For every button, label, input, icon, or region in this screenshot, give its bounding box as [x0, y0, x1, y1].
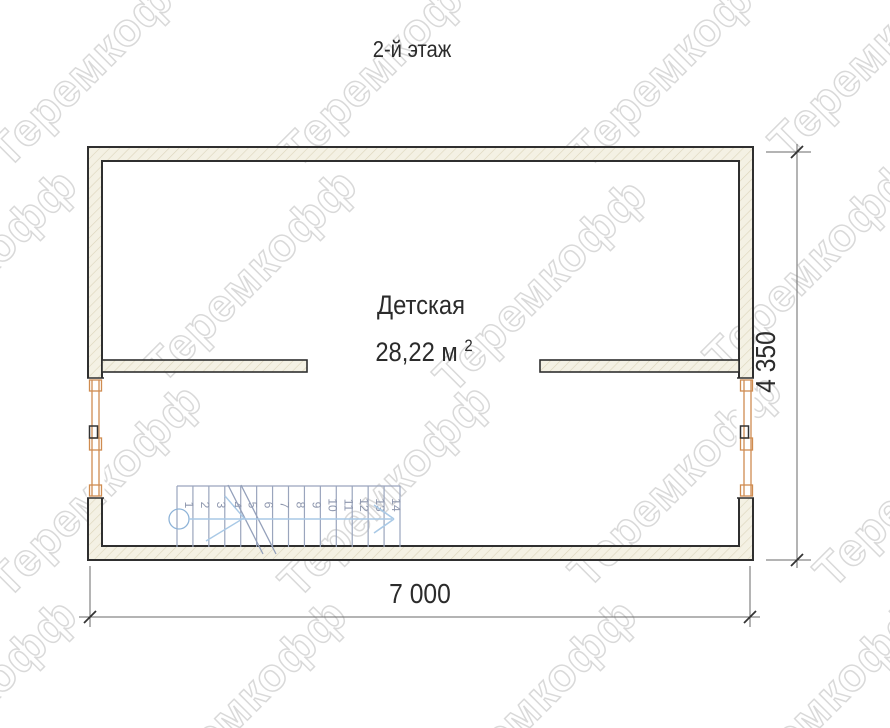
floor-plan-drawing: 1234567891011121314 7 0: [0, 0, 890, 728]
stair-step-numbers: 1234567891011121314: [182, 498, 403, 512]
stair-step-number: 14: [389, 498, 403, 512]
height-dimension-label: 4 350: [750, 331, 782, 393]
room-area-superscript: 2: [464, 337, 472, 355]
width-dimension: 7 000: [79, 566, 760, 627]
room-area-label: 28,22 м 2: [375, 337, 472, 367]
stair-step-number: 7: [278, 502, 292, 509]
page-title: 2-й этаж: [373, 36, 452, 63]
room-area-value: 28,22 м: [375, 338, 457, 368]
stair-step-number: 3: [214, 502, 228, 509]
width-dimension-label: 7 000: [389, 578, 451, 610]
stair-step-number: 11: [341, 499, 355, 512]
stair-step-number: 8: [293, 502, 307, 509]
room-name-label: Детская: [377, 291, 465, 321]
stair-step-number: 2: [198, 502, 212, 509]
stair-step-number: 1: [182, 502, 196, 509]
stair-step-number: 10: [325, 498, 339, 512]
stair-step-number: 12: [357, 498, 371, 512]
floor-plan-page: ТеремкоффТеремкоффТеремкоффТеремкоффТере…: [0, 0, 890, 728]
staircase: 1234567891011121314: [169, 485, 403, 554]
stair-step-number: 6: [262, 502, 276, 509]
stair-step-number: 9: [309, 502, 323, 509]
height-dimension: 4 350: [750, 144, 811, 568]
